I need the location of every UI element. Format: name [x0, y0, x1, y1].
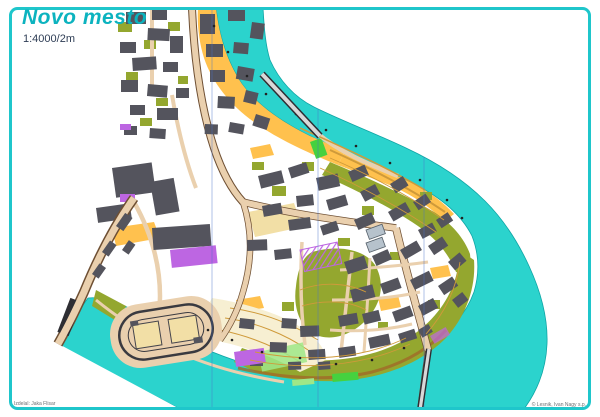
- canopy-buildings: [366, 224, 385, 252]
- credit-copyright: © Lesnik, Ivan Nagy s.p.: [532, 402, 586, 408]
- map-title: Novo mesto: [22, 6, 147, 30]
- orienteering-map: [0, 0, 600, 417]
- map-scale: 1:4000/2m: [23, 33, 75, 45]
- map-page: Novo mesto 1:4000/2m Izdelal: Jaka Flisa…: [0, 0, 600, 417]
- credit-author: Izdelal: Jaka Flisar: [14, 401, 55, 407]
